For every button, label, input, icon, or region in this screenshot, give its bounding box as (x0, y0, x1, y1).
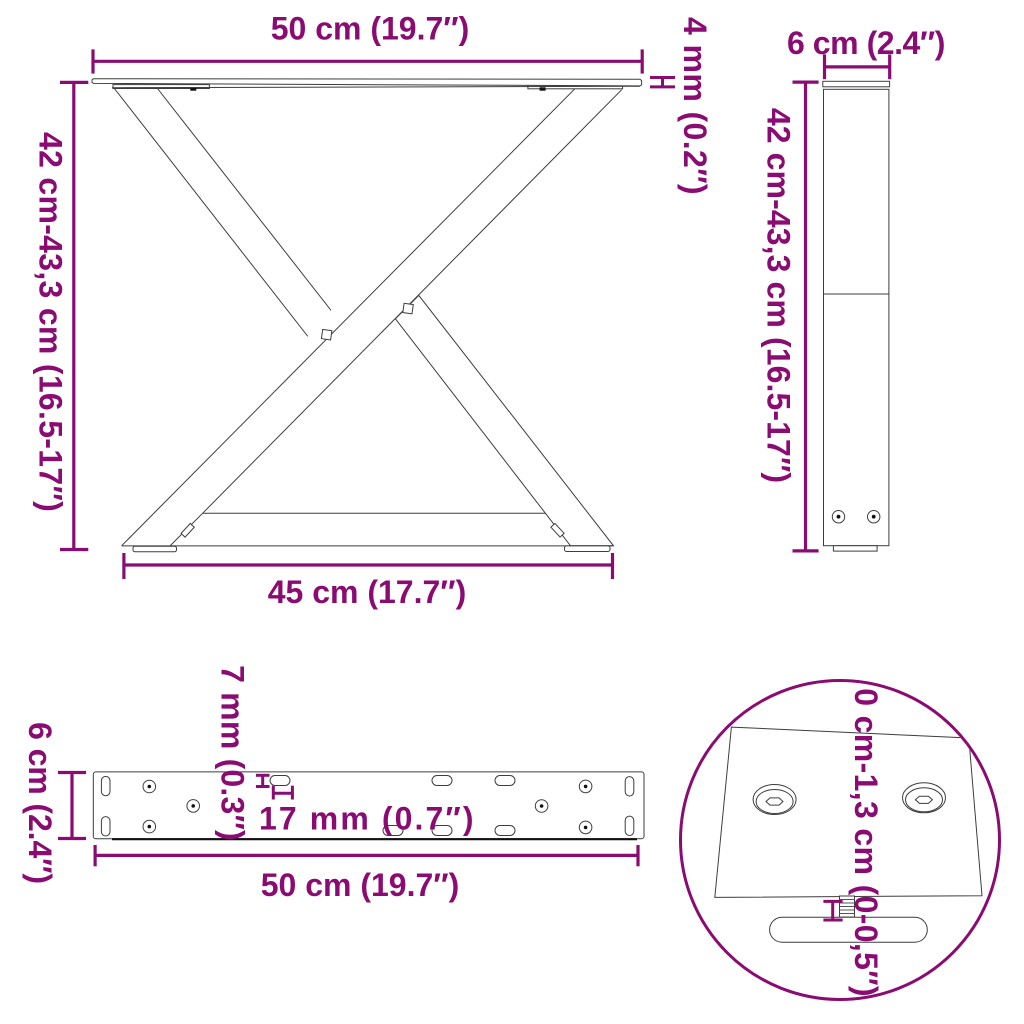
svg-text:4 mm (0.2″): 4 mm (0.2″) (677, 17, 713, 195)
svg-text:50 cm (19.7″): 50 cm (19.7″) (271, 10, 470, 46)
svg-text:7 mm (0.3″): 7 mm (0.3″) (215, 665, 251, 841)
svg-text:6 cm (2.4″): 6 cm (2.4″) (22, 722, 58, 884)
svg-text:50 cm (19.7″): 50 cm (19.7″) (261, 867, 460, 903)
svg-text:42 cm-43,3 cm (16.5-17″): 42 cm-43,3 cm (16.5-17″) (33, 132, 69, 512)
svg-text:6 cm (2.4″): 6 cm (2.4″) (787, 25, 945, 61)
svg-text:0 cm-1,3 cm (0-0,5″): 0 cm-1,3 cm (0-0,5″) (848, 688, 884, 997)
svg-text:45 cm (17.7″): 45 cm (17.7″) (268, 574, 467, 610)
svg-text:17 mm (0.7″): 17 mm (0.7″) (259, 801, 476, 837)
svg-text:42 cm-43,3 cm (16.5-17″): 42 cm-43,3 cm (16.5-17″) (761, 108, 797, 483)
